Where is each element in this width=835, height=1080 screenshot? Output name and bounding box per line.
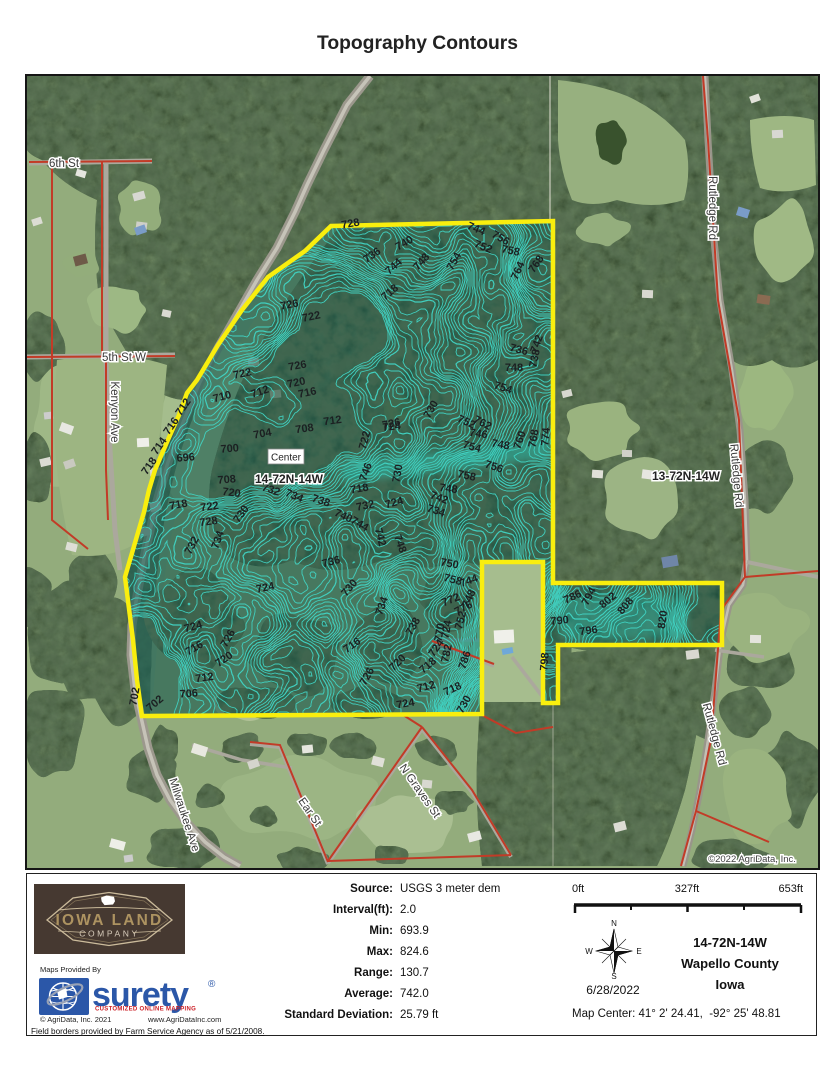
svg-text:798: 798 [538, 652, 552, 671]
svg-text:696: 696 [176, 451, 195, 465]
svg-text:748: 748 [505, 362, 523, 374]
svg-text:820: 820 [656, 610, 670, 630]
svg-text:Center: Center [271, 453, 302, 464]
svg-text:706: 706 [179, 687, 198, 700]
svg-text:5th St W: 5th St W [102, 352, 146, 364]
svg-text:796: 796 [579, 624, 599, 638]
svg-text:COMPANY: COMPANY [79, 929, 140, 939]
svg-text:0ft: 0ft [572, 883, 584, 895]
svg-text:728: 728 [199, 515, 219, 529]
svg-text:327ft: 327ft [675, 883, 699, 895]
svg-text:6th St: 6th St [49, 158, 80, 170]
svg-text:720: 720 [221, 486, 241, 500]
svg-text:14-72N-14W: 14-72N-14W [255, 472, 324, 486]
svg-text:W: W [585, 947, 593, 956]
svg-text:N: N [611, 919, 617, 928]
svg-text:712: 712 [195, 671, 215, 685]
svg-text:Rutledge Rd: Rutledge Rd [706, 176, 718, 240]
svg-text:IOWA LAND: IOWA LAND [56, 912, 164, 929]
svg-text:790: 790 [550, 614, 570, 628]
svg-text:CUSTOMIZED ONLINE MAPPING: CUSTOMIZED ONLINE MAPPING [95, 1007, 196, 1013]
svg-text:708: 708 [217, 473, 236, 487]
svg-text:E: E [636, 947, 641, 956]
svg-text:©2022 AgriData, Inc.: ©2022 AgriData, Inc. [708, 854, 796, 865]
svg-text:712: 712 [323, 414, 343, 428]
svg-text:700: 700 [220, 442, 239, 456]
svg-text:13-72N-14W: 13-72N-14W [652, 469, 721, 483]
svg-text:774: 774 [539, 426, 553, 446]
svg-text:653ft: 653ft [779, 883, 803, 895]
svg-text:S: S [611, 972, 616, 981]
svg-text:®: ® [208, 979, 216, 990]
svg-text:708: 708 [295, 422, 315, 436]
svg-text:Kenyon Ave: Kenyon Ave [108, 381, 120, 442]
svg-text:722: 722 [200, 500, 220, 514]
